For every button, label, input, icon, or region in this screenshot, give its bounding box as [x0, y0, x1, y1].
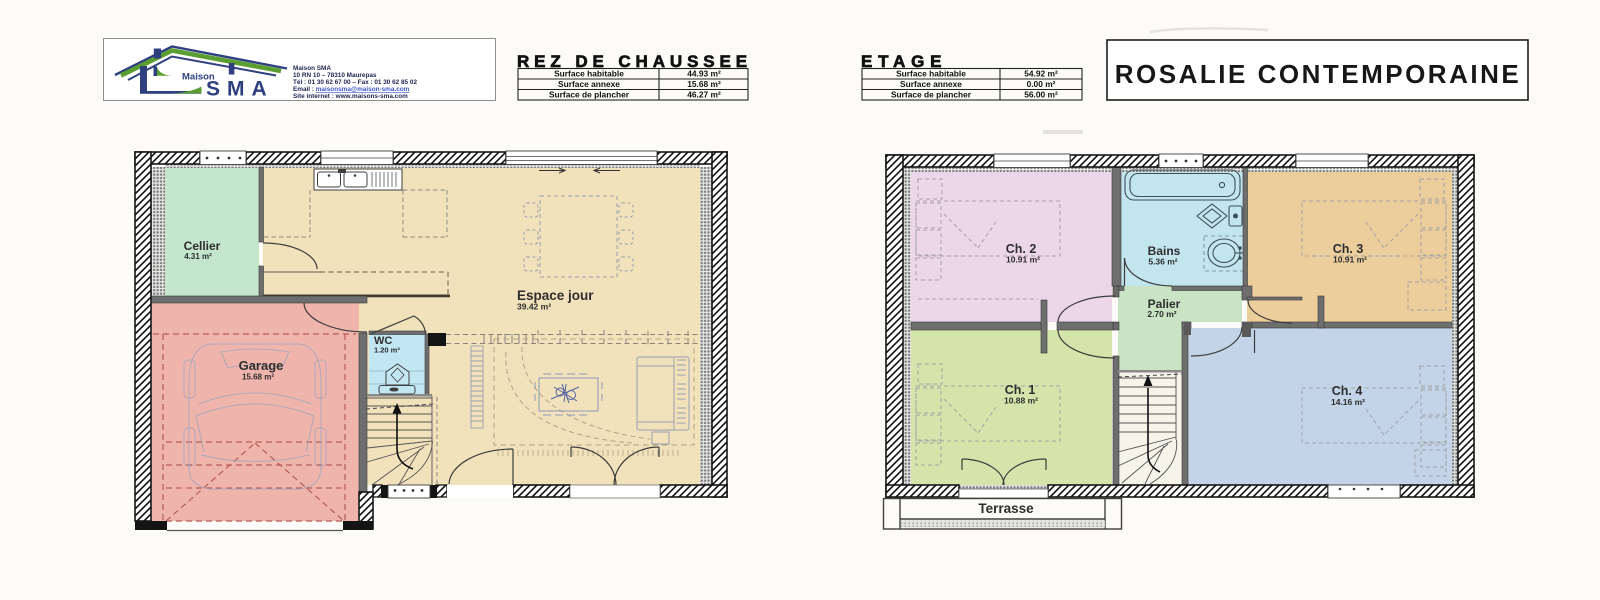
svg-text:Surface habitable: Surface habitable: [896, 69, 966, 79]
svg-text:54.92 m²: 54.92 m²: [1024, 69, 1058, 79]
svg-text:Surface habitable: Surface habitable: [554, 69, 624, 79]
svg-text:Terrasse: Terrasse: [978, 501, 1034, 516]
svg-text:Ch. 4: Ch. 4: [1332, 384, 1363, 398]
svg-text:Garage: Garage: [239, 358, 284, 373]
svg-text:44.93 m²: 44.93 m²: [687, 69, 721, 79]
svg-text:10.91 m²: 10.91 m²: [1006, 255, 1040, 265]
svg-text:ROSALIE CONTEMPORAINE: ROSALIE CONTEMPORAINE: [1115, 59, 1521, 89]
svg-text:Maison SMA: Maison SMA: [293, 65, 331, 72]
svg-text:15.68 m²: 15.68 m²: [242, 373, 274, 382]
svg-text:46.27 m²: 46.27 m²: [687, 90, 721, 100]
svg-text:10.88 m²: 10.88 m²: [1004, 396, 1038, 406]
svg-text:0.00 m²: 0.00 m²: [1027, 79, 1056, 89]
svg-text:Email : maisonsma@maison-sma.c: Email : maisonsma@maison-sma.com: [293, 86, 410, 93]
svg-text:56.00 m²: 56.00 m²: [1024, 90, 1058, 100]
svg-text:Surface de plancher: Surface de plancher: [891, 90, 972, 100]
svg-text:Site internet : www.maisons-sm: Site internet : www.maisons-sma.com: [293, 93, 408, 100]
svg-text:Tél : 01 30 62 67 00 – Fax : 0: Tél : 01 30 62 67 00 – Fax : 01 30 62 85…: [293, 79, 417, 86]
svg-text:10 RN 10 – 78310 Maurepas: 10 RN 10 – 78310 Maurepas: [293, 72, 377, 79]
svg-text:Surface annexe: Surface annexe: [900, 79, 962, 89]
svg-text:10.91 m²: 10.91 m²: [1333, 255, 1367, 265]
svg-text:15.68 m²: 15.68 m²: [687, 79, 721, 89]
svg-text:14.16 m²: 14.16 m²: [1331, 397, 1365, 407]
svg-text:39.42 m²: 39.42 m²: [517, 302, 551, 312]
svg-text:4.31 m²: 4.31 m²: [184, 252, 212, 261]
svg-text:2.70 m²: 2.70 m²: [1147, 309, 1176, 319]
svg-text:Cellier: Cellier: [184, 239, 221, 253]
svg-text:5.36 m²: 5.36 m²: [1148, 257, 1177, 267]
svg-text:1.20 m²: 1.20 m²: [374, 346, 400, 355]
svg-text:Surface de plancher: Surface de plancher: [549, 90, 630, 100]
svg-text:Surface annexe: Surface annexe: [558, 79, 620, 89]
svg-text:SMA: SMA: [206, 78, 274, 101]
